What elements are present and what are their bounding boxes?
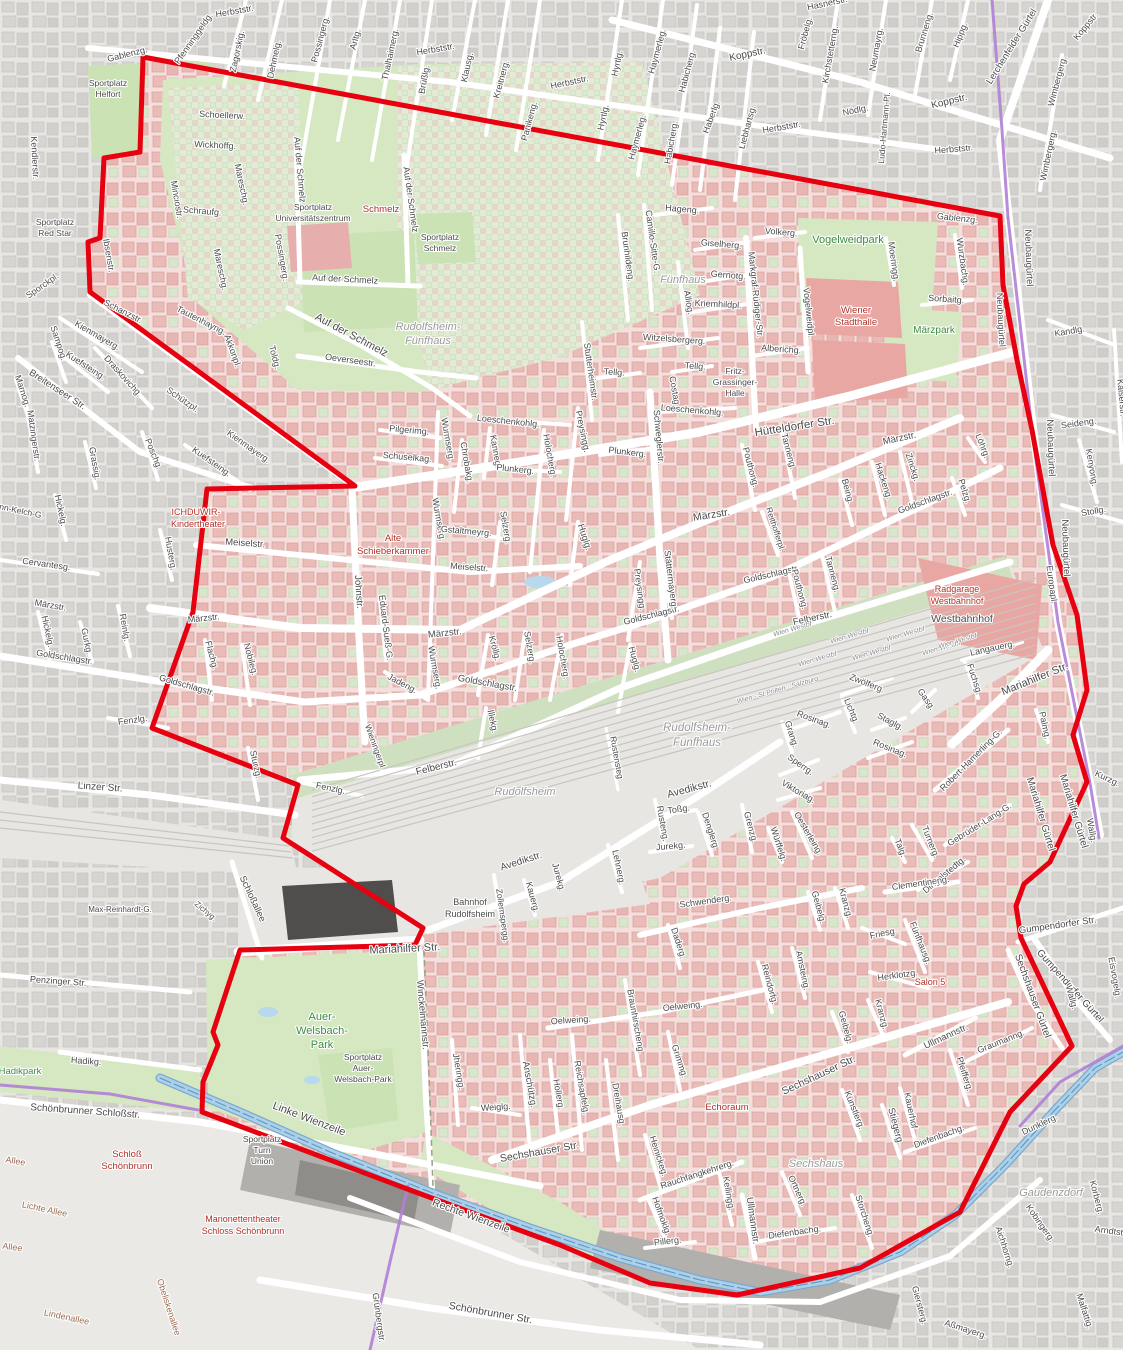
map-label: Helfort (95, 89, 121, 99)
map-label: Schieberkammer (357, 546, 429, 557)
map-label: Radgarage (935, 584, 980, 594)
map-label: Tellg. (684, 360, 706, 371)
map-label: Grassinger- (713, 377, 758, 387)
map-label: Wiener (841, 305, 871, 316)
pond (304, 1076, 320, 1084)
map-label: Sportplatz (294, 202, 332, 212)
map-label: Hadikpark (0, 1066, 42, 1077)
map-label: Halle (725, 388, 745, 398)
map-label: Neubaugürtel (1059, 519, 1072, 576)
map-label: Weiglg. (481, 1101, 511, 1113)
map-label: Rudolfsheim (445, 909, 495, 919)
map-label: Fünfhaus (660, 274, 706, 286)
map-label: Westbahnhof (931, 613, 993, 625)
map-label: Gaudenzdorf (1019, 1187, 1084, 1199)
map-label: Echoraum (705, 1102, 748, 1113)
map-label: Union (251, 1156, 273, 1166)
map-label: Welsbach-Park (334, 1074, 392, 1084)
map-label: Vogelweidpark (812, 234, 884, 246)
map-label: Auer- (353, 1063, 374, 1073)
map-label: Fritz- (725, 366, 745, 376)
map-canvas[interactable]: Gablenzg.Pfenninggeldg.Herbststr.Zagorsk… (0, 0, 1123, 1350)
map-label: Schmelz (363, 204, 400, 215)
map-label: Westbahnhof (931, 596, 984, 606)
map-label: Schloß (112, 1149, 142, 1160)
map-label: Universitätszentrum (275, 213, 350, 223)
map-label: Auer- (309, 1011, 336, 1023)
map-label: Schönbrunn (101, 1161, 152, 1172)
map-label: Fünfhaus (673, 737, 721, 749)
map-label: ICHDUWIR- (172, 507, 221, 517)
map-label: Kindertheater (171, 519, 225, 529)
map-label: Sportplatz (36, 217, 74, 227)
map-label: Rudolfsheim- (663, 722, 731, 734)
map-label: Neubaugürtel (1044, 419, 1057, 476)
map-label: Märzpark (913, 325, 956, 336)
map-label: Johnstr. (352, 575, 365, 609)
map-label: Neubaugürtel (1022, 229, 1035, 286)
map-label: Marionettentheater (205, 1214, 281, 1224)
map-label: Park (311, 1039, 334, 1051)
map-label: Schmelz (424, 243, 457, 253)
map-label: Bahnhof (453, 897, 487, 907)
map-label: Tellg. (603, 366, 625, 377)
map-label: Rudolfsheim (494, 786, 555, 798)
map-label: Alte (385, 533, 401, 544)
map-label: Red Star (38, 228, 72, 238)
map-label: Rudolfsheim- (396, 321, 461, 333)
map-label: Salon 5 (915, 977, 946, 987)
map-viewport[interactable]: Gablenzg.Pfenninggeldg.Herbststr.Zagorsk… (0, 0, 1123, 1350)
map-label: Fünfhaus (405, 335, 451, 347)
map-label: Sechshaus (789, 1158, 844, 1170)
map-label: Sportplatz (344, 1052, 382, 1062)
map-label: Sportplatz (243, 1134, 281, 1144)
area-dark (282, 880, 398, 940)
map-label: Schloss Schönbrunn (202, 1226, 285, 1236)
pond (258, 1007, 278, 1017)
map-label: Max-Reinhardt-G. (88, 905, 152, 914)
map-label: Turn (253, 1145, 270, 1155)
map-label: Stadthalle (835, 317, 877, 328)
map-label: Welsbach- (296, 1025, 348, 1037)
map-label: Sportplatz (421, 232, 459, 242)
map-label: Sportplatz (89, 78, 127, 88)
map-label: Hadikg. (71, 1055, 102, 1067)
